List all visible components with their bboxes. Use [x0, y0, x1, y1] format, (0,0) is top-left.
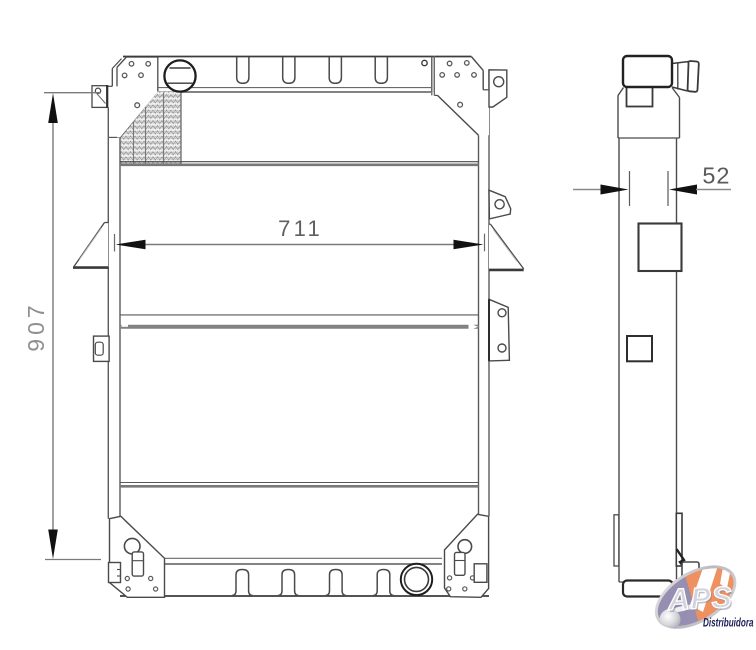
- svg-text:Distribuidora: Distribuidora: [703, 618, 754, 630]
- svg-text:APS: APS: [666, 581, 733, 617]
- svg-text:711: 711: [278, 216, 323, 241]
- svg-text:52: 52: [702, 162, 730, 188]
- svg-text:907: 907: [23, 301, 49, 351]
